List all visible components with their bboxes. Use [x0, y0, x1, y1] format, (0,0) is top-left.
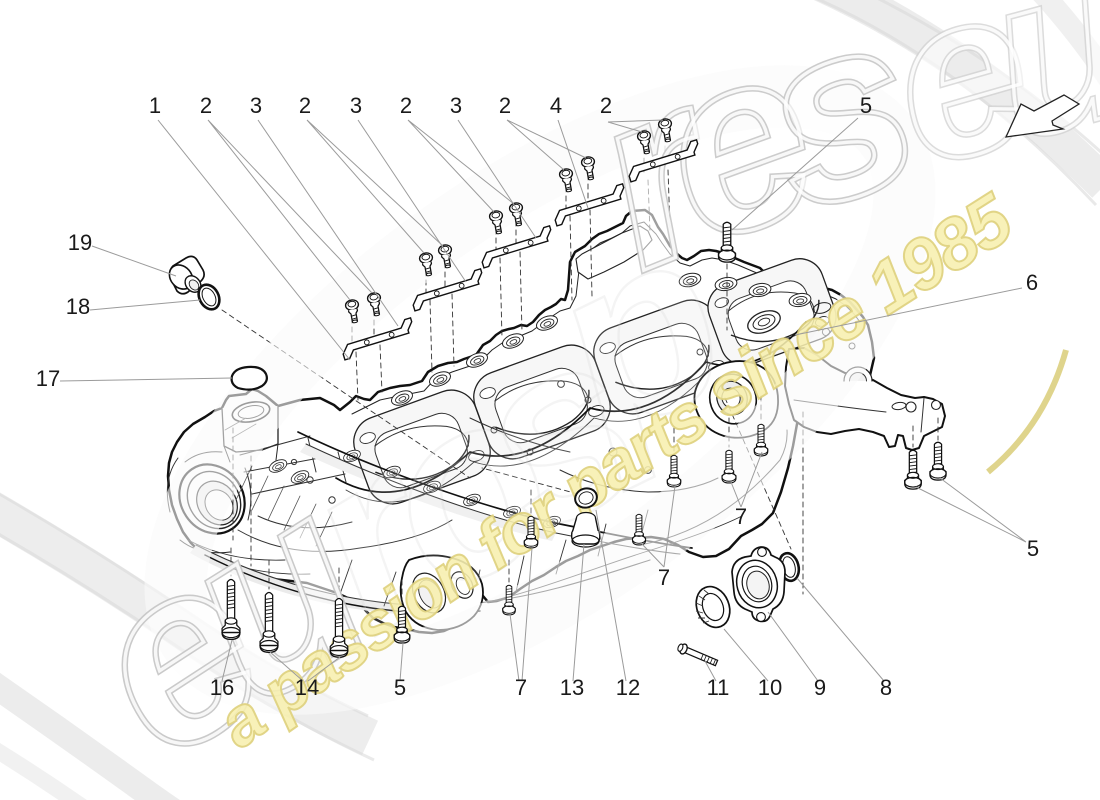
- svg-text:2: 2: [299, 93, 311, 118]
- svg-text:2: 2: [600, 93, 612, 118]
- svg-text:19: 19: [68, 230, 92, 255]
- svg-text:7: 7: [515, 675, 527, 700]
- svg-text:18: 18: [66, 294, 90, 319]
- svg-text:8: 8: [880, 675, 892, 700]
- svg-text:2: 2: [499, 93, 511, 118]
- svg-text:4: 4: [550, 93, 562, 118]
- svg-text:11: 11: [707, 675, 730, 700]
- svg-text:1: 1: [149, 93, 161, 118]
- svg-text:3: 3: [250, 93, 262, 118]
- svg-text:7: 7: [658, 565, 670, 590]
- svg-text:3: 3: [350, 93, 362, 118]
- svg-text:5: 5: [860, 93, 872, 118]
- svg-text:12: 12: [616, 675, 640, 700]
- svg-text:7: 7: [735, 504, 747, 529]
- svg-text:17: 17: [36, 366, 60, 391]
- svg-text:16: 16: [210, 675, 234, 700]
- svg-text:9: 9: [814, 675, 826, 700]
- svg-text:10: 10: [758, 675, 782, 700]
- svg-text:6: 6: [1026, 270, 1038, 295]
- svg-text:14: 14: [295, 675, 319, 700]
- svg-text:5: 5: [394, 675, 406, 700]
- svg-text:2: 2: [400, 93, 412, 118]
- svg-text:2: 2: [200, 93, 212, 118]
- svg-text:13: 13: [560, 675, 584, 700]
- svg-text:5: 5: [1027, 536, 1039, 561]
- svg-text:3: 3: [450, 93, 462, 118]
